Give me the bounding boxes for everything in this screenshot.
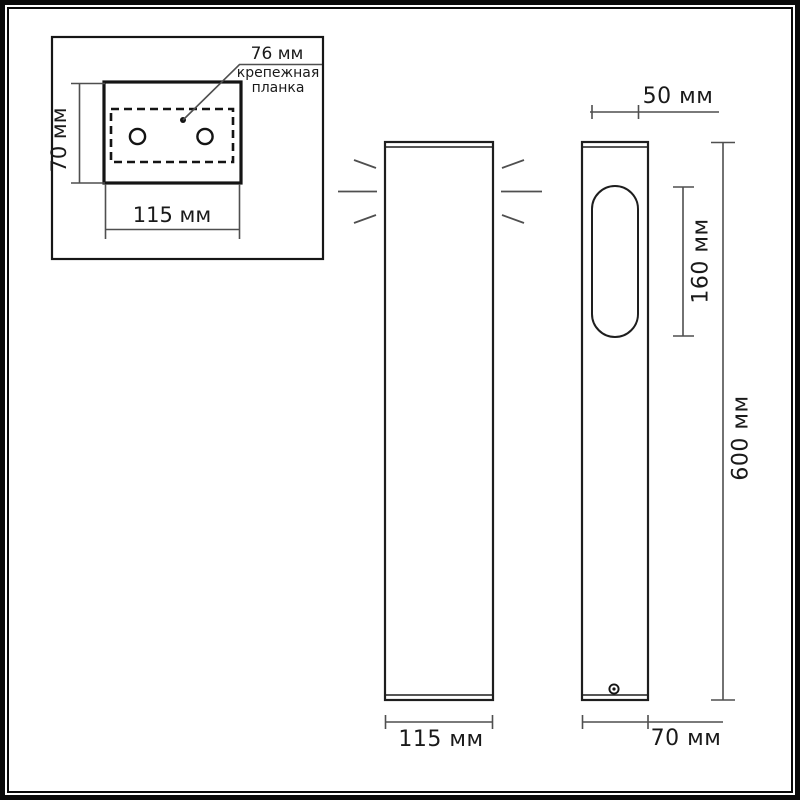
front-view-body: [385, 142, 493, 700]
screw-center-dot: [612, 687, 615, 690]
mount-hole-left: [130, 129, 145, 144]
total-height-dim-label: 600 мм: [729, 395, 754, 480]
depth-dim-label: 70 мм: [651, 726, 722, 751]
mount-bracket-callout-label-line2: планка: [237, 81, 320, 96]
light-rays-right: [501, 160, 542, 223]
drawing-canvas: [0, 0, 800, 800]
window-width-dim-label: 50 мм: [643, 84, 714, 109]
inset-width-dim-label: 115 мм: [133, 203, 211, 227]
light-window: [592, 186, 638, 337]
mount-bracket-callout-label: крепежная планка: [237, 66, 320, 96]
mount-plate: [104, 82, 241, 183]
luminaire-dimension-drawing: 76 мм крепежная планка 70 мм 115 мм 115 …: [0, 0, 800, 800]
inset-height-dim-label: 70 мм: [47, 107, 71, 172]
mount-bracket-callout-label-line1: крепежная: [237, 66, 320, 81]
window-height-dim-label: 160 мм: [689, 218, 714, 303]
light-rays-left: [338, 160, 377, 223]
front-width-dim-label: 115 мм: [398, 727, 483, 752]
mount-hole-right: [197, 129, 212, 144]
mount-bracket-callout-value: 76 мм: [251, 44, 304, 64]
